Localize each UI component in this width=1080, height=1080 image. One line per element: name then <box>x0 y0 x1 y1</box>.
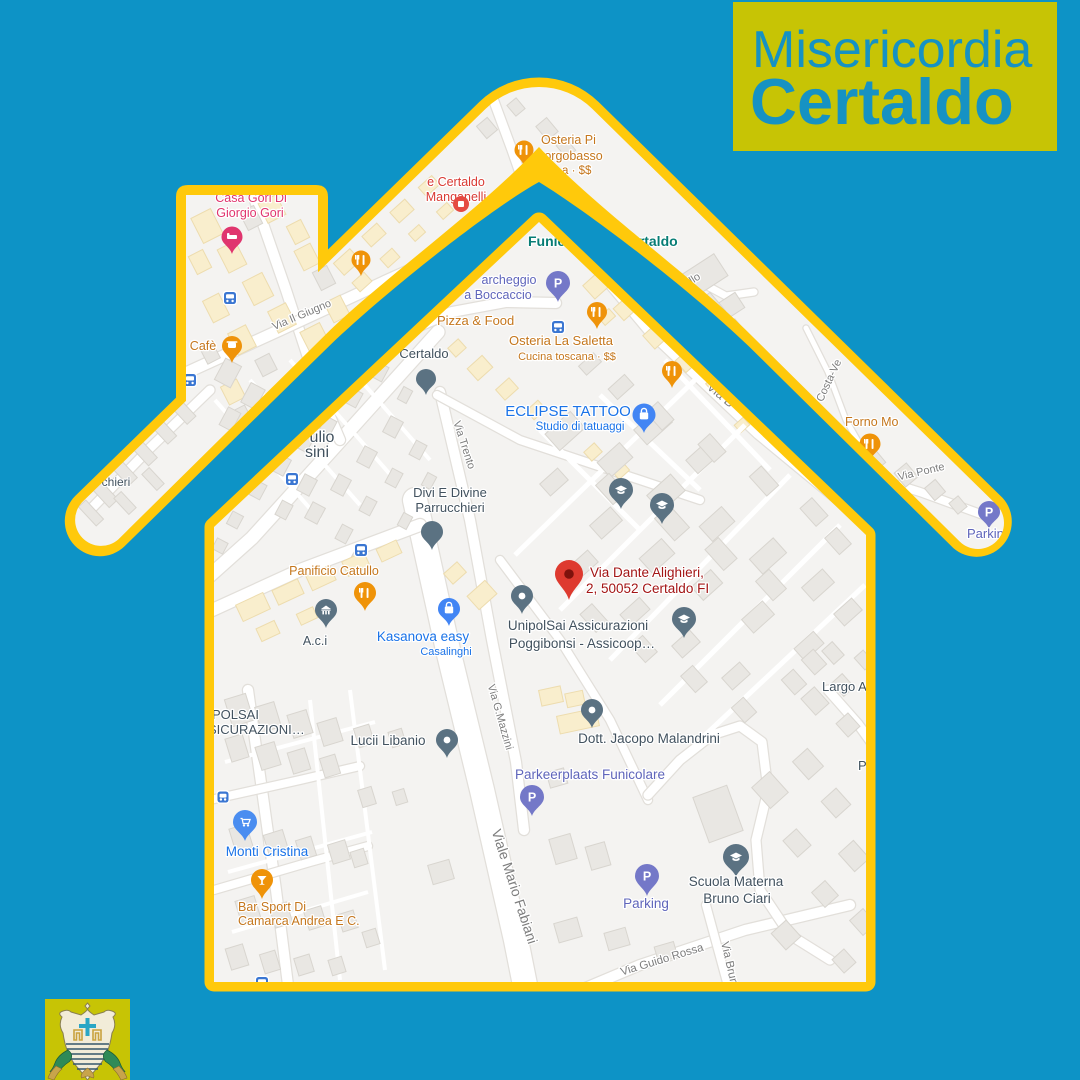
svg-text:Casalinghi: Casalinghi <box>420 646 471 658</box>
svg-text:Bar Sport Di: Bar Sport Di <box>238 900 306 914</box>
svg-text:Studio di tatuaggi: Studio di tatuaggi <box>536 421 625 433</box>
svg-text:P: P <box>643 869 651 883</box>
svg-text:UnipolSai Assicurazioni: UnipolSai Assicurazioni <box>508 618 648 633</box>
svg-text:P: P <box>985 505 993 519</box>
svg-text:Parkeerplaats Funicolare: Parkeerplaats Funicolare <box>515 767 665 782</box>
svg-text:archeggio: archeggio <box>482 273 537 287</box>
svg-text:P: P <box>528 790 536 804</box>
svg-text:Casa Gori Di: Casa Gori Di <box>215 191 287 205</box>
svg-text:Certaldo: Certaldo <box>399 346 448 361</box>
svg-text:Forno Mo: Forno Mo <box>845 415 899 429</box>
svg-text:ertaldo: ertaldo <box>631 233 678 249</box>
svg-text:SICURAZIONI…: SICURAZIONI… <box>208 722 305 737</box>
svg-text:Osteria La Saletta: Osteria La Saletta <box>509 333 614 348</box>
svg-text:Poggibonsi - Assicoop…: Poggibonsi - Assicoop… <box>509 636 655 651</box>
svg-text:Cafè: Cafè <box>190 339 216 353</box>
svg-text:Via Dante Alighieri,: Via Dante Alighieri, <box>590 565 704 580</box>
svg-text:ECLIPSE TATTOO: ECLIPSE TATTOO <box>505 403 631 420</box>
svg-text:Osteria Pi: Osteria Pi <box>541 133 596 147</box>
svg-text:Camarca Andrea E C.: Camarca Andrea E C. <box>238 914 360 928</box>
svg-text:P: P <box>554 276 562 290</box>
svg-text:Parrucchieri: Parrucchieri <box>415 500 484 515</box>
svg-text:Scuola Materna: Scuola Materna <box>689 874 784 889</box>
svg-text:e Certaldo: e Certaldo <box>427 175 485 189</box>
svg-text:Kasanova easy: Kasanova easy <box>377 629 470 644</box>
svg-text:Parking: Parking <box>623 896 669 911</box>
svg-text:Bruno Ciari: Bruno Ciari <box>703 891 771 906</box>
svg-text:Largo Al: Largo Al <box>822 679 870 694</box>
svg-text:sini: sini <box>305 444 329 461</box>
svg-text:Monti Cristina: Monti Cristina <box>226 844 309 859</box>
svg-text:A.c.i: A.c.i <box>303 634 327 648</box>
svg-text:Cucina toscana · $$: Cucina toscana · $$ <box>518 351 616 363</box>
svg-text:Dott. Jacopo Malandrini: Dott. Jacopo Malandrini <box>578 731 720 746</box>
svg-text:Borgobasso: Borgobasso <box>536 149 603 163</box>
svg-text:Funic: Funic <box>528 233 566 249</box>
svg-text:Parkin: Parkin <box>967 526 1004 541</box>
svg-text:Par: Par <box>858 758 879 773</box>
svg-text:2, 50052 Certaldo FI: 2, 50052 Certaldo FI <box>586 581 709 596</box>
svg-text:Certaldo: Certaldo <box>750 65 1014 138</box>
svg-text:POLSAI: POLSAI <box>212 707 259 722</box>
svg-text:Giorgio Gori: Giorgio Gori <box>216 206 283 220</box>
svg-text:· Pizza & Food: · Pizza & Food <box>429 313 514 328</box>
svg-text:a · $$: a · $$ <box>562 165 592 177</box>
svg-text:Divi E Divine: Divi E Divine <box>413 485 487 500</box>
svg-text:chieri: chieri <box>102 475 131 489</box>
svg-text:a Boccaccio: a Boccaccio <box>464 288 531 302</box>
svg-text:Panificio Catullo: Panificio Catullo <box>289 564 379 578</box>
svg-text:Lucii Libanio: Lucii Libanio <box>350 733 425 748</box>
